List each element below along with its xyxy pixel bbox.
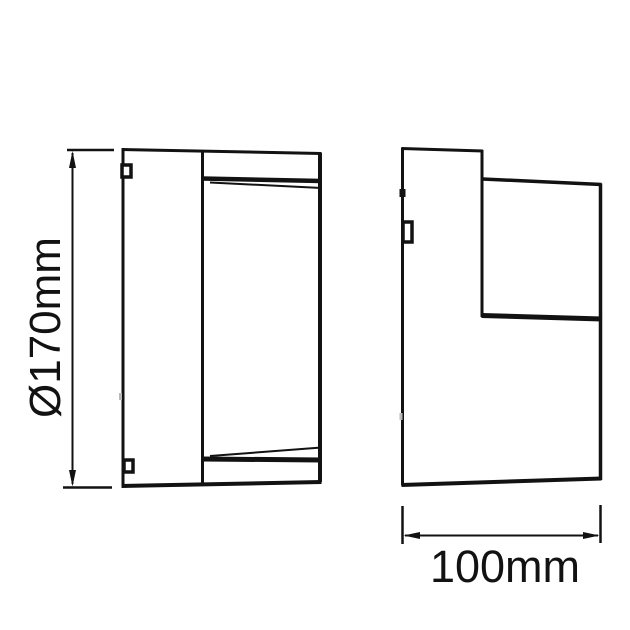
front-view	[119, 148, 322, 487]
front-bottom-edge	[122, 482, 322, 486]
height-dimension: Ø170mm	[21, 150, 114, 488]
height-dim-arrow-up	[69, 151, 76, 168]
front-bottom-rim-ellipse-line	[210, 448, 322, 457]
side-view	[400, 148, 603, 486]
depth-dimension: 100mm	[403, 505, 601, 592]
side-top-edge	[402, 149, 484, 152]
front-mounting-clip-top	[122, 165, 131, 177]
height-dim-arrow-down	[69, 470, 76, 487]
side-bottom-edge	[402, 479, 602, 486]
side-shade-top-edge	[483, 179, 602, 185]
front-top-edge	[122, 150, 322, 154]
side-edge-notch	[400, 413, 403, 420]
depth-dim-arrow-right	[583, 532, 600, 539]
wall-light-technical-drawing: Ø170mm 100mm	[0, 0, 630, 630]
dimension-drawing-canvas: Ø170mm 100mm	[0, 0, 630, 630]
front-top-rim-ellipse-line	[210, 183, 322, 189]
depth-dimension-label: 100mm	[430, 541, 580, 592]
front-edge-notch	[119, 393, 122, 400]
front-mounting-clip-bottom	[124, 460, 133, 472]
depth-dim-arrow-left	[404, 532, 421, 539]
front-top-rim-line	[202, 179, 322, 182]
side-mounting-tab	[403, 222, 412, 242]
side-shade-bottom-edge	[482, 316, 603, 320]
height-dimension-label: Ø170mm	[21, 237, 70, 418]
front-bottom-rim-line	[202, 459, 322, 460]
